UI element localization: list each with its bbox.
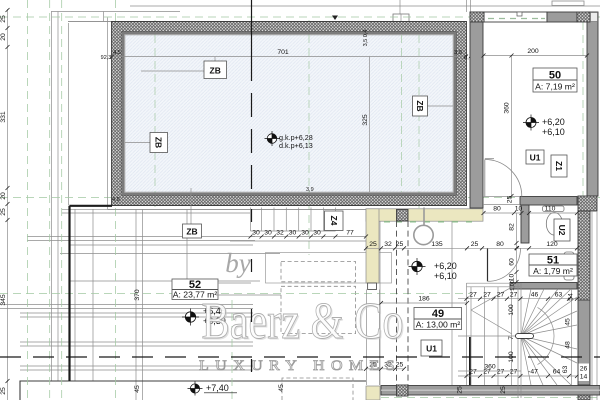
svg-text:U1: U1 [530, 153, 541, 163]
svg-text:30: 30 [264, 230, 272, 237]
svg-text:30: 30 [301, 230, 309, 237]
svg-text:325: 325 [362, 114, 369, 126]
svg-text:32: 32 [384, 241, 392, 248]
svg-text:32: 32 [276, 230, 284, 237]
svg-text:Baerz & Co: Baerz & Co [202, 293, 404, 350]
svg-text:82: 82 [509, 223, 516, 231]
svg-text:48: 48 [565, 341, 572, 349]
svg-text:60: 60 [509, 258, 516, 266]
svg-text:+6,20: +6,20 [434, 261, 457, 271]
svg-text:4,5: 4,5 [113, 50, 121, 56]
svg-text:25: 25 [0, 208, 7, 216]
svg-text:14: 14 [580, 374, 588, 381]
svg-text:A: 7,19 m²: A: 7,19 m² [535, 82, 575, 92]
svg-text:4,9: 4,9 [112, 197, 120, 203]
svg-text:25: 25 [457, 386, 464, 394]
svg-text:ZB: ZB [186, 227, 197, 237]
svg-text:80: 80 [496, 241, 504, 248]
svg-text:27: 27 [483, 291, 491, 298]
svg-text:120: 120 [546, 241, 558, 248]
svg-text:110: 110 [545, 206, 556, 213]
svg-text:25: 25 [396, 241, 404, 248]
svg-text:45: 45 [565, 318, 572, 326]
svg-text:46: 46 [531, 291, 539, 298]
svg-text:701: 701 [277, 49, 289, 56]
svg-text:LUXURY HOMES: LUXURY HOMES [199, 358, 401, 374]
svg-text:51: 51 [547, 255, 559, 267]
svg-text:3,5 0,4: 3,5 0,4 [363, 30, 369, 47]
svg-text:64: 64 [553, 369, 561, 376]
svg-text:25: 25 [507, 196, 514, 204]
svg-text:49: 49 [432, 308, 444, 320]
svg-text:A: 1,79 m²: A: 1,79 m² [533, 266, 573, 276]
svg-text:45: 45 [278, 384, 285, 392]
svg-text:135: 135 [431, 241, 443, 248]
svg-text:100: 100 [508, 304, 515, 316]
svg-text:27: 27 [497, 369, 505, 376]
svg-text:77: 77 [346, 230, 354, 237]
svg-text:U2: U2 [557, 225, 567, 236]
svg-text:Z4: Z4 [329, 216, 339, 226]
svg-text:80: 80 [493, 206, 501, 213]
svg-text:360: 360 [504, 102, 511, 114]
svg-text:by: by [225, 248, 251, 278]
svg-text:10: 10 [515, 206, 523, 213]
svg-text:1,00: 1,00 [510, 280, 516, 291]
svg-text:45: 45 [134, 385, 141, 393]
svg-text:25: 25 [0, 15, 7, 23]
svg-text:+6,10: +6,10 [434, 271, 457, 281]
svg-text:345: 345 [0, 294, 7, 306]
svg-text:3,9: 3,9 [454, 50, 462, 56]
svg-text:30: 30 [313, 230, 321, 237]
svg-text:10: 10 [509, 274, 516, 282]
svg-text:26: 26 [580, 366, 588, 373]
svg-text:+6,10: +6,10 [542, 127, 565, 137]
svg-text:ZB: ZB [415, 100, 425, 111]
svg-text:27: 27 [469, 291, 477, 298]
svg-text:ZB: ZB [210, 66, 221, 76]
svg-text:54: 54 [568, 293, 575, 301]
svg-text:A: 13,00 m²: A: 13,00 m² [416, 320, 461, 330]
svg-text:27: 27 [497, 291, 505, 298]
svg-text:3,9: 3,9 [306, 187, 314, 193]
svg-text:25: 25 [500, 386, 507, 394]
svg-text:d.k.p+6,13: d.k.p+6,13 [279, 141, 313, 150]
svg-text:370: 370 [134, 289, 141, 301]
svg-text:U1: U1 [426, 344, 437, 354]
svg-text:25: 25 [369, 241, 377, 248]
svg-text:27: 27 [510, 291, 518, 298]
svg-text:200: 200 [527, 48, 539, 55]
svg-text:63: 63 [562, 366, 569, 374]
svg-text:27: 27 [510, 369, 518, 376]
svg-text:ZB: ZB [154, 137, 164, 148]
svg-text:25: 25 [0, 387, 7, 395]
svg-text:+7,40: +7,40 [206, 383, 229, 393]
svg-text:50: 50 [549, 70, 561, 82]
svg-text:30: 30 [252, 230, 260, 237]
svg-text:27: 27 [469, 369, 477, 376]
svg-text:20: 20 [0, 192, 7, 200]
svg-text:Z1: Z1 [554, 161, 564, 171]
svg-text:92,3: 92,3 [101, 55, 112, 61]
svg-text:30: 30 [289, 230, 297, 237]
svg-text:331: 331 [0, 111, 7, 123]
svg-text:63: 63 [555, 291, 563, 298]
svg-text:360: 360 [484, 364, 496, 371]
svg-text:20: 20 [0, 33, 7, 41]
svg-text:-47: -47 [528, 369, 538, 376]
svg-text:7: 7 [508, 336, 515, 340]
svg-text:+6,20: +6,20 [542, 117, 565, 127]
svg-text:186: 186 [418, 296, 430, 303]
svg-text:25: 25 [471, 241, 479, 248]
